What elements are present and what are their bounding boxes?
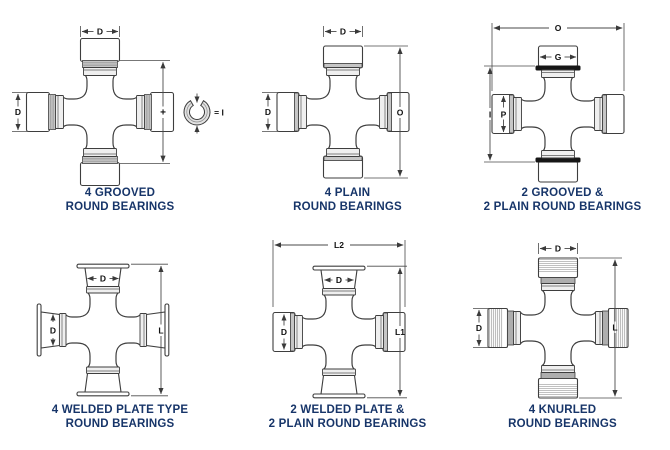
caption-line2: 2 PLAIN ROUND BEARINGS: [269, 417, 427, 431]
cell-4-knurled: D D L 4 KNURLED R: [455, 225, 670, 442]
caption-4-grooved: 4 GROOVED ROUND BEARINGS: [66, 186, 175, 214]
dim-left-D: D: [473, 309, 490, 348]
dim-label-left: D: [476, 323, 482, 333]
dim-label-left: D: [15, 107, 21, 117]
diagram-4-grooved: D D +: [0, 8, 240, 194]
snap-ring-icon: [184, 94, 210, 134]
dim-top-D: D: [324, 26, 363, 37]
dim-label-cup-top: D: [100, 274, 106, 284]
cell-4-grooved: D D +: [0, 8, 240, 225]
dim-top-D: D: [81, 26, 120, 37]
diagram-4-knurled: D D L: [455, 225, 670, 411]
diagram-grid: D D +: [0, 0, 670, 442]
dim-label-right: L1: [395, 327, 405, 337]
ujoint-cross: [37, 264, 169, 396]
caption-line1: 4 WELDED PLATE TYPE: [52, 403, 189, 417]
caption-line1: 4 KNURLED: [508, 403, 617, 417]
caption-4-plain: 4 PLAIN ROUND BEARINGS: [293, 186, 402, 214]
caption-4-knurled: 4 KNURLED ROUND BEARINGS: [508, 403, 617, 431]
dim-label-cup-top: D: [336, 275, 342, 285]
dim-label-right: L: [612, 323, 617, 333]
caption-line1: 2 GROOVED &: [484, 186, 642, 200]
dim-top-D: D: [539, 243, 578, 254]
caption-line2: ROUND BEARINGS: [52, 417, 189, 431]
dim-label-cup-left: D: [50, 326, 56, 336]
caption-line2: ROUND BEARINGS: [508, 417, 617, 431]
ujoint-cross: [488, 258, 628, 398]
caption-line2: 2 PLAIN ROUND BEARINGS: [484, 200, 642, 214]
caption-line1: 4 PLAIN: [293, 186, 402, 200]
dim-label-plus: +: [160, 108, 166, 119]
cell-2-welded-2-plain: L2 D D L1: [240, 225, 455, 442]
dim-left-D: D: [262, 93, 279, 132]
dim-label-left: D: [265, 107, 271, 117]
caption-line1: 4 GROOVED: [66, 186, 175, 200]
diagram-4-welded-plate: D D L: [0, 225, 240, 411]
cell-2-grooved-2-plain: O G I P: [455, 8, 670, 225]
diagram-4-plain: D D O: [240, 8, 455, 194]
caption-line1: 2 WELDED PLATE &: [269, 403, 427, 417]
caption-line2: ROUND BEARINGS: [66, 200, 175, 214]
ujoint-cross: [273, 266, 405, 398]
dim-label-cup-left: P: [501, 110, 507, 120]
dim-label-cup-left: D: [281, 327, 287, 337]
cell-4-plain: D D O 4 PLAIN ROU: [240, 8, 455, 225]
dim-label-right: O: [397, 108, 404, 118]
dim-label-cup-top: G: [555, 52, 562, 62]
caption-4-welded-plate: 4 WELDED PLATE TYPE ROUND BEARINGS: [52, 403, 189, 431]
diagram-2-welded-2-plain: L2 D D L1: [240, 225, 455, 411]
dim-label-equals-I: = I: [214, 108, 224, 118]
dim-label-top: O: [555, 23, 562, 33]
dim-label-top: D: [555, 244, 561, 254]
dim-label-left: I: [489, 110, 491, 120]
caption-2-grooved-2-plain: 2 GROOVED & 2 PLAIN ROUND BEARINGS: [484, 186, 642, 214]
diagram-2-grooved-2-plain: O G I P: [455, 8, 670, 194]
dim-label-right: L: [158, 326, 163, 336]
dim-label-top: D: [97, 27, 103, 37]
ujoint-cross: [277, 46, 409, 178]
dim-label-top: D: [340, 27, 346, 37]
cell-4-welded-plate: D D L 4 WELDED PLATE TYPE ROUND BEARING: [0, 225, 240, 442]
dim-label-top: L2: [334, 240, 344, 250]
caption-2-welded-2-plain: 2 WELDED PLATE & 2 PLAIN ROUND BEARINGS: [269, 403, 427, 431]
caption-line2: ROUND BEARINGS: [293, 200, 402, 214]
figure-bearing-types: D D +: [0, 0, 670, 450]
